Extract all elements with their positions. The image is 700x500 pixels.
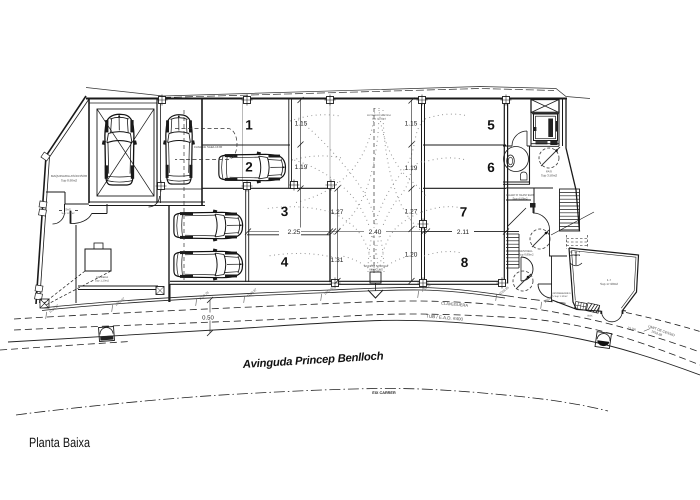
svg-text:1.27: 1.27 (331, 209, 344, 216)
svg-text:2: 2 (245, 160, 253, 175)
svg-text:0.50: 0.50 (202, 315, 214, 322)
svg-text:2.11: 2.11 (457, 229, 470, 236)
svg-text:2.40: 2.40 (369, 229, 382, 236)
svg-text:4: 4 (281, 255, 289, 270)
svg-text:Sup 10.50m2: Sup 10.50m2 (372, 118, 387, 121)
svg-text:1.19: 1.19 (405, 165, 418, 172)
svg-text:1.27: 1.27 (405, 209, 418, 216)
svg-text:EIX CARRER: EIX CARRER (372, 391, 396, 395)
svg-text:Sup 4.50m2: Sup 4.50m2 (512, 197, 528, 201)
svg-text:CUNA DE SABA 10.00: CUNA DE SABA 10.00 (194, 145, 223, 149)
svg-text:1: 1 (245, 118, 253, 133)
svg-text:7: 7 (460, 205, 468, 220)
svg-text:Sup 1.10m2: Sup 1.10m2 (555, 295, 569, 298)
svg-text:Sup 3.50m2: Sup 3.50m2 (541, 174, 558, 178)
svg-text:5: 5 (487, 118, 495, 133)
svg-text:8: 8 (461, 255, 469, 270)
svg-text:2.25: 2.25 (288, 229, 301, 236)
svg-text:1.15: 1.15 (405, 121, 418, 128)
svg-text:VEHICLES: VEHICLES (369, 268, 383, 272)
svg-text:Sup 8.90m2: Sup 8.90m2 (61, 179, 78, 183)
svg-text:6: 6 (487, 160, 495, 175)
svg-text:Planta Baixa: Planta Baixa (29, 435, 90, 450)
svg-text:1.31: 1.31 (331, 257, 344, 264)
svg-text:BOX: BOX (587, 315, 592, 318)
svg-text:3: 3 (281, 204, 289, 219)
svg-text:1.20: 1.20 (405, 252, 418, 259)
svg-text:MAQUINARIA ASCENSOR: MAQUINARIA ASCENSOR (51, 174, 88, 178)
svg-text:Sup 1.07m2: Sup 1.07m2 (62, 212, 76, 215)
svg-text:1.19: 1.19 (295, 164, 308, 171)
svg-text:Sup 17.98m2: Sup 17.98m2 (600, 282, 618, 286)
svg-text:Sup 6.80m2: Sup 6.80m2 (518, 253, 534, 257)
svg-text:1.15: 1.15 (295, 121, 308, 128)
svg-text:Sup 1.20m2: Sup 1.20m2 (95, 280, 110, 283)
